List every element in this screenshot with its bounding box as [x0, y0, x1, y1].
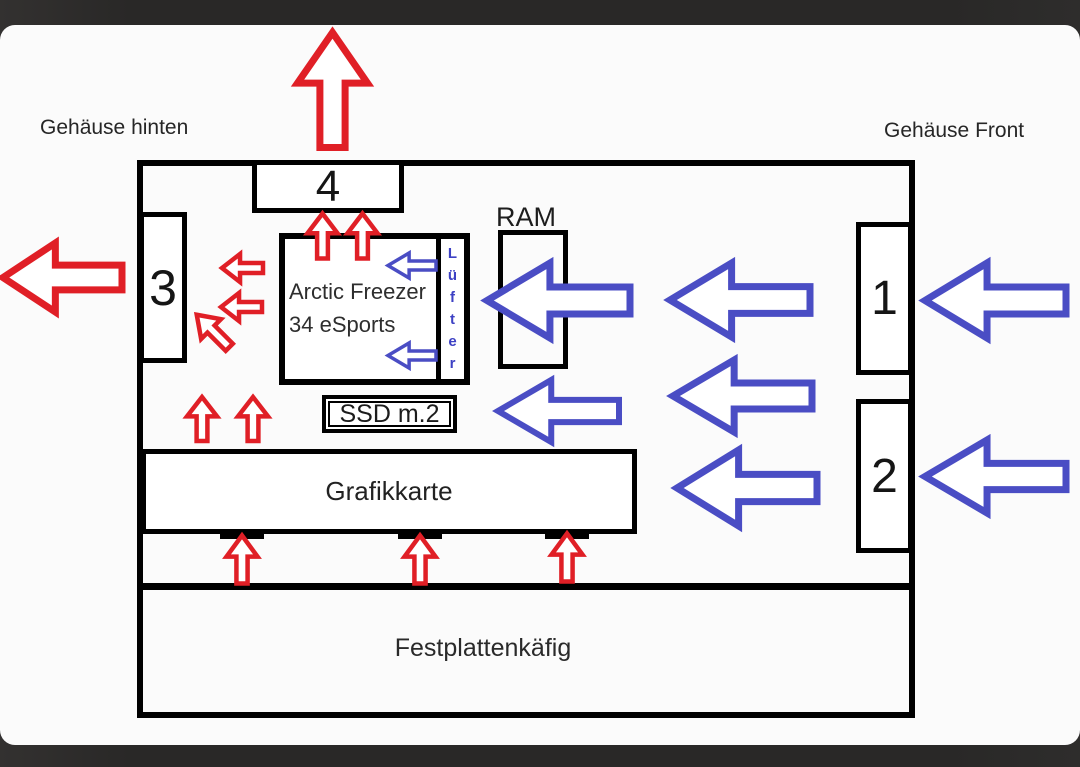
gpu-label: Grafikkarte	[325, 476, 452, 507]
cpu-cooler-box: Arctic Freezer 34 eSports Lüfter	[279, 233, 470, 385]
gpu-fan-tab	[545, 529, 589, 539]
hdd-cage-label: Festplattenkäfig	[133, 634, 833, 663]
cpu-cooler-line2: 34 eSports	[289, 308, 426, 341]
gpu-box: Grafikkarte	[141, 449, 637, 534]
cooler-fan-strip: Lüfter	[436, 239, 464, 379]
ram-box	[498, 230, 568, 369]
ssd-label: SSD m.2	[339, 400, 439, 429]
fan-box-3: 3	[139, 212, 187, 363]
label-gehaeuse-hinten: Gehäuse hinten	[40, 116, 188, 140]
hdd-cage-divider	[141, 583, 915, 590]
cpu-cooler-line1: Arctic Freezer	[289, 275, 426, 308]
fan-3-number: 3	[149, 259, 177, 317]
label-gehaeuse-front: Gehäuse Front	[884, 119, 1024, 143]
fan-1-number: 1	[871, 271, 898, 326]
fan-2-number: 2	[871, 449, 898, 504]
fan-box-4: 4	[252, 160, 404, 213]
ssd-box: SSD m.2	[322, 395, 457, 433]
cooler-fan-label: Lüfter	[444, 239, 461, 379]
fan-box-1: 1	[856, 222, 913, 375]
fan-box-2: 2	[856, 399, 913, 553]
fan-4-number: 4	[316, 162, 340, 212]
screenshot-frame: Gehäuse hinten Gehäuse Front 4 3 1 2 RAM…	[0, 0, 1080, 767]
ram-label: RAM	[496, 202, 556, 233]
gpu-fan-tab	[220, 529, 264, 539]
cpu-cooler-label: Arctic Freezer 34 eSports	[289, 275, 426, 341]
gpu-fan-tab	[398, 529, 442, 539]
